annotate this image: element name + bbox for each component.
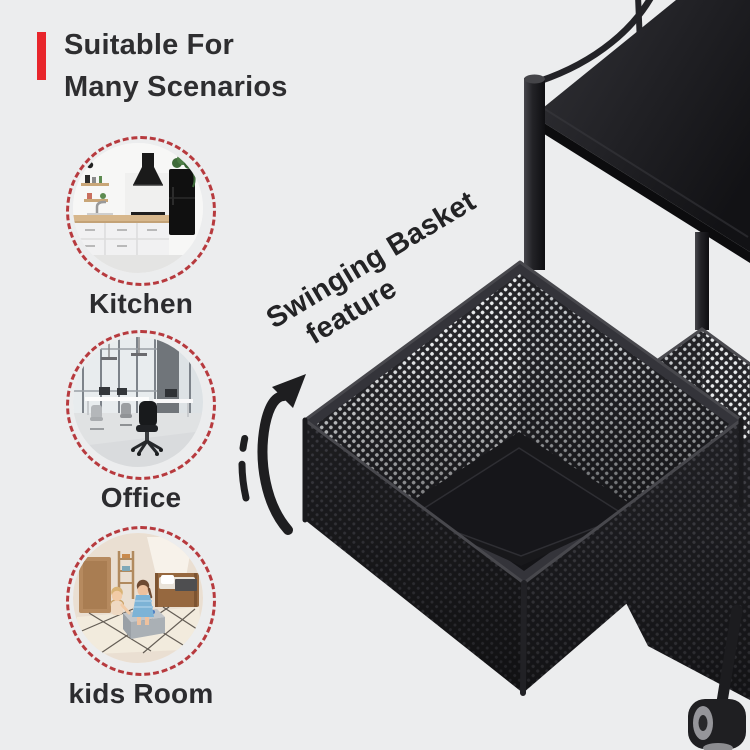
kitchen-photo <box>73 143 203 273</box>
top-shelf <box>533 0 750 263</box>
promo-canvas: Suitable For Many Scenarios <box>0 0 750 750</box>
kids-room-photo-ring <box>66 526 216 676</box>
scenario-kids-room: kids Room <box>31 526 251 710</box>
scenario-label-kitchen: Kitchen <box>89 288 193 320</box>
page-title: Suitable For Many Scenarios <box>64 24 288 108</box>
page-title-line1: Suitable For <box>64 24 288 66</box>
accent-bar <box>37 32 46 80</box>
scenario-office: Office <box>31 330 251 514</box>
kitchen-scene <box>73 143 203 273</box>
office-scene <box>73 337 203 467</box>
scenario-kitchen: Kitchen <box>31 136 251 320</box>
office-photo-ring <box>66 330 216 480</box>
kids-room-photo <box>73 533 203 663</box>
kitchen-photo-ring <box>66 136 216 286</box>
scenario-label-kids-room: kids Room <box>69 678 214 710</box>
right-basket-pole <box>695 232 709 330</box>
page-title-line2: Many Scenarios <box>64 66 288 108</box>
office-photo <box>73 337 203 467</box>
swing-arrow-icon <box>242 374 306 530</box>
kids-room-scene <box>73 533 203 663</box>
scenario-label-office: Office <box>101 482 182 514</box>
